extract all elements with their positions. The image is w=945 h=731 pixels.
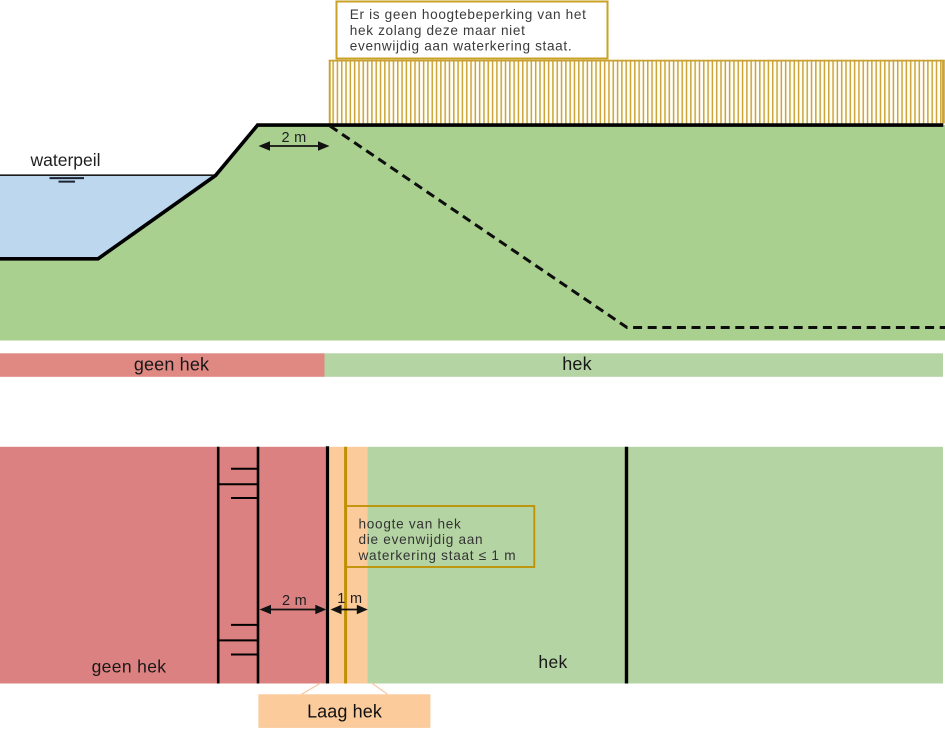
svg-text:geen hek: geen hek — [134, 354, 210, 374]
svg-text:1 m: 1 m — [337, 591, 362, 607]
svg-text:2 m: 2 m — [282, 593, 307, 609]
svg-text:evenwijdig aan waterkering sta: evenwijdig aan waterkering staat. — [350, 39, 572, 54]
svg-text:hek zolang deze maar niet: hek zolang deze maar niet — [350, 23, 526, 38]
svg-text:hek: hek — [562, 354, 592, 374]
svg-text:hek: hek — [538, 652, 567, 672]
svg-text:die evenwijdig aan: die evenwijdig aan — [359, 532, 484, 547]
svg-text:waterkering staat ≤ 1 m: waterkering staat ≤ 1 m — [358, 548, 517, 563]
svg-text:Er is geen hoogtebeperking van: Er is geen hoogtebeperking van het — [350, 7, 587, 22]
svg-text:2 m: 2 m — [281, 130, 306, 146]
svg-text:waterpeil: waterpeil — [30, 150, 101, 170]
svg-text:Laag hek: Laag hek — [307, 701, 383, 721]
svg-text:hoogte van hek: hoogte van hek — [359, 516, 462, 531]
svg-text:geen hek: geen hek — [92, 657, 167, 677]
